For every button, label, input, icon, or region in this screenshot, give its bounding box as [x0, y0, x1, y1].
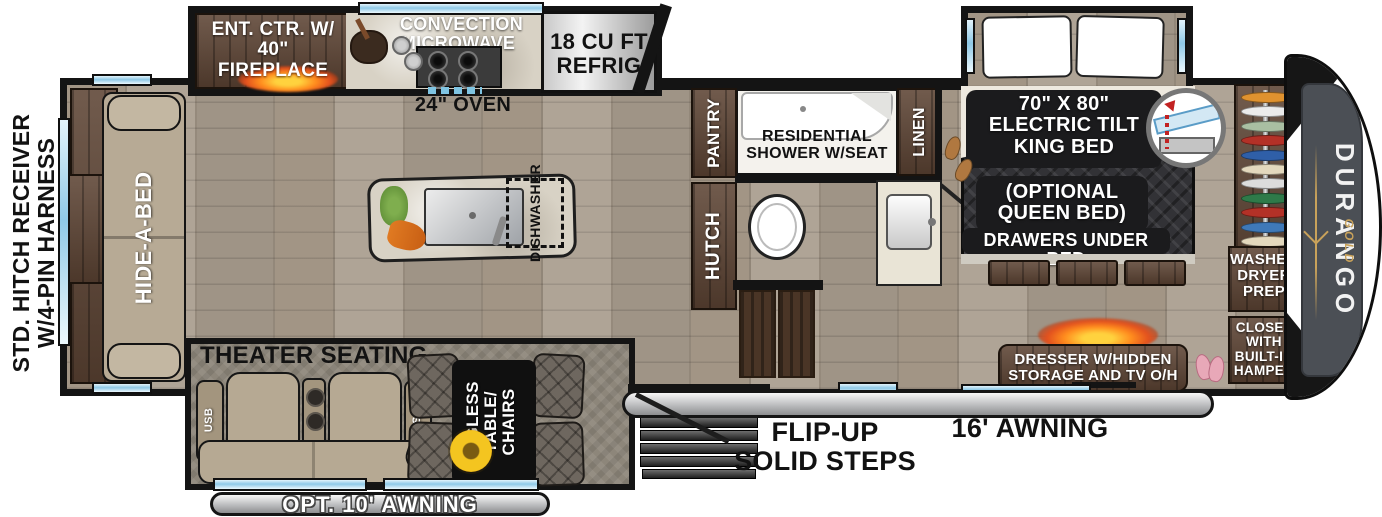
footrest-seam	[312, 442, 315, 482]
burner-icon	[428, 51, 448, 71]
living-slide-window	[213, 478, 367, 491]
front-bottom-window	[92, 382, 152, 394]
floorplan: STD. HITCH RECEIVER W/4-PIN HARNESS 18 C…	[0, 0, 1382, 517]
tilt-bed-inset	[1146, 88, 1226, 168]
entry-door-header	[733, 280, 823, 290]
front-cap: DURANGO GOLD	[1284, 54, 1382, 400]
dresser-label: DRESSER W/HIDDEN STORAGE AND TV O/H	[1002, 352, 1184, 384]
living-slide-window	[383, 478, 539, 491]
hutch-label: HUTCH	[704, 186, 724, 306]
under-bed-drawer	[988, 260, 1050, 286]
under-bed-drawer	[1056, 260, 1118, 286]
entry-door-panel	[739, 290, 776, 378]
oven-label: 24" OVEN	[408, 95, 518, 116]
left-wall-window	[58, 118, 70, 346]
pillow-icon	[981, 15, 1072, 79]
sunflower-icon	[450, 430, 492, 472]
bed-optional-label: (OPTIONAL QUEEN BED)	[978, 182, 1146, 225]
linen-label: LINEN	[911, 90, 927, 174]
sink-drain-icon	[469, 212, 476, 219]
cap-panel: DURANGO GOLD	[1301, 83, 1363, 377]
vanity-sink-icon	[886, 194, 932, 250]
dishwasher-label: DISHWASHER	[528, 158, 542, 268]
tilt-dotted-line-icon	[1165, 115, 1169, 149]
burner-icon	[458, 51, 478, 71]
pillow-icon	[1075, 15, 1165, 79]
tilt-arrow-icon	[1164, 96, 1180, 111]
vanity-faucet-icon	[928, 218, 936, 226]
toilet-seat-icon	[757, 203, 797, 251]
cupholder-icon	[306, 388, 325, 407]
cupholder-icon	[306, 412, 325, 431]
shower-drain-icon	[800, 106, 806, 112]
wall-bath-right	[935, 84, 942, 182]
brand-sub-logo: GOLD	[1341, 197, 1355, 287]
jar-icon	[404, 52, 423, 71]
bed-label: 70" X 80" ELECTRIC TILT KING BED	[968, 94, 1160, 158]
tilt-mattress-icon	[1153, 103, 1221, 134]
awning-10-label: OPT. 10' AWNING	[210, 493, 550, 517]
hitch-label: STD. HITCH RECEIVER W/4-PIN HARNESS	[9, 88, 57, 398]
awning-16-label: 16' AWNING	[930, 414, 1130, 443]
brand-chevron-icon	[1303, 219, 1328, 244]
dinette-chair	[531, 421, 585, 487]
entertainment-center-label: ENT. CTR. W/ 40" FIREPLACE	[203, 20, 343, 81]
shower-label: RESIDENTIAL SHOWER W/SEAT	[739, 128, 895, 162]
usb-port-label: USB	[204, 400, 216, 440]
hide-a-bed-label: HIDE-A-BED	[132, 123, 156, 353]
bedroom-window-right	[1177, 18, 1187, 74]
burner-icon	[428, 69, 448, 89]
under-bed-drawer	[1124, 260, 1186, 286]
oven-vent-icon	[428, 87, 482, 94]
pantry-label: PANTRY	[705, 90, 723, 176]
refrigerator-label: 18 CU FT REFRIG	[545, 30, 653, 77]
steps-label: FLIP-UP SOLID STEPS	[725, 418, 925, 476]
entry-door-panel	[778, 290, 815, 378]
dinette-chair	[530, 353, 585, 420]
front-top-window	[92, 74, 152, 86]
bedroom-window-left	[965, 18, 975, 74]
burner-icon	[458, 69, 478, 89]
